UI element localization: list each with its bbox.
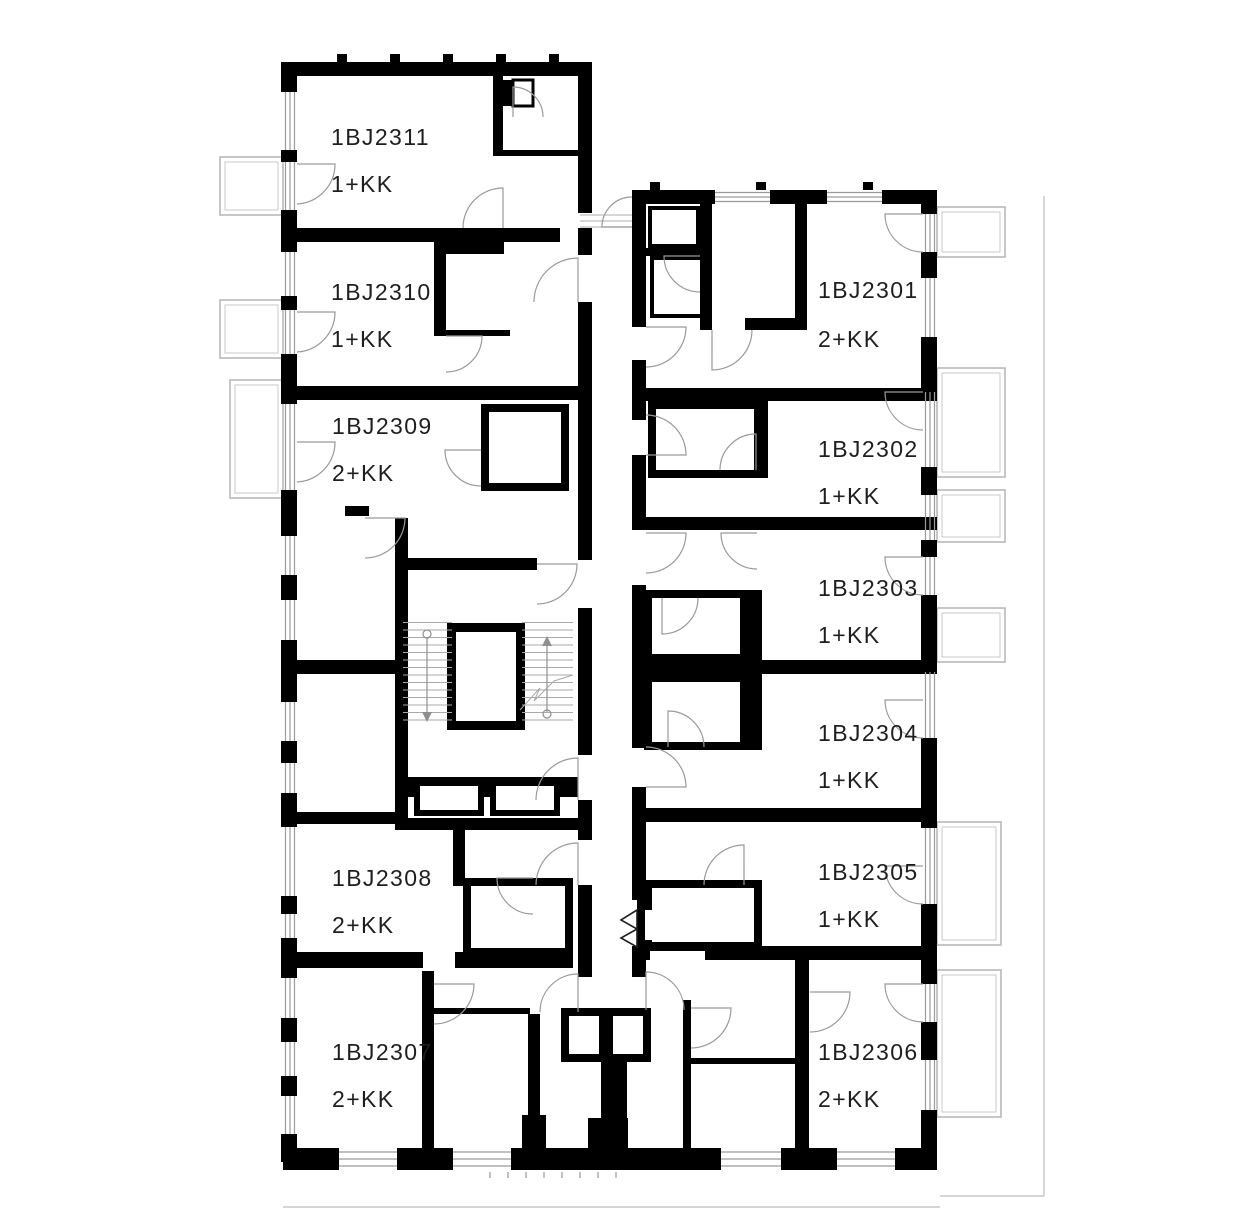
- entrance-door-symbol: [621, 910, 637, 947]
- unit-label-1bj2302: 1BJ2302: [818, 436, 919, 462]
- balcony: [220, 157, 283, 215]
- floor-plan: 1BJ2311 1+KK 1BJ2310 1+KK 1BJ2309 2+KK 1…: [0, 0, 1251, 1230]
- unit-label-1bj2307: 1BJ2307: [332, 1039, 433, 1065]
- balcony: [937, 368, 1005, 477]
- stair-direction-up: [542, 636, 552, 718]
- unit-type-1bj2304: 1+KK: [818, 767, 881, 793]
- balcony: [937, 490, 1005, 542]
- unit-type-1bj2307: 2+KK: [332, 1086, 395, 1112]
- unit-label-1bj2304: 1BJ2304: [818, 720, 919, 746]
- unit-type-1bj2306: 2+KK: [818, 1086, 881, 1112]
- unit-label-1bj2303: 1BJ2303: [818, 575, 919, 601]
- unit-type-1bj2309: 2+KK: [332, 460, 395, 486]
- unit-label-1bj2311: 1BJ2311: [331, 124, 430, 150]
- unit-type-1bj2301: 2+KK: [818, 326, 881, 352]
- unit-type-1bj2303: 1+KK: [818, 622, 881, 648]
- unit-label-1bj2301: 1BJ2301: [818, 277, 919, 303]
- balcony: [937, 970, 1001, 1117]
- stair-direction-down: [422, 630, 432, 722]
- balcony: [937, 207, 1005, 257]
- balcony: [220, 300, 283, 358]
- page: { "plan": { "units": [ {"id": "1BJ2311",…: [0, 0, 1251, 1230]
- unit-label-1bj2305: 1BJ2305: [818, 859, 919, 885]
- unit-type-1bj2310: 1+KK: [331, 326, 394, 352]
- unit-type-1bj2302: 1+KK: [818, 483, 881, 509]
- balcony: [937, 608, 1005, 662]
- unit-type-1bj2308: 2+KK: [332, 912, 395, 938]
- unit-type-1bj2305: 1+KK: [818, 906, 881, 932]
- floor-plan-svg: 1BJ2311 1+KK 1BJ2310 1+KK 1BJ2309 2+KK 1…: [0, 0, 1251, 1230]
- balcony: [937, 822, 1001, 945]
- unit-label-1bj2309: 1BJ2309: [332, 413, 433, 439]
- unit-label-1bj2310: 1BJ2310: [331, 279, 432, 305]
- unit-type-1bj2311: 1+KK: [331, 171, 394, 197]
- unit-label-1bj2308: 1BJ2308: [332, 865, 433, 891]
- unit-label-1bj2306: 1BJ2306: [818, 1039, 919, 1065]
- balcony: [230, 380, 283, 498]
